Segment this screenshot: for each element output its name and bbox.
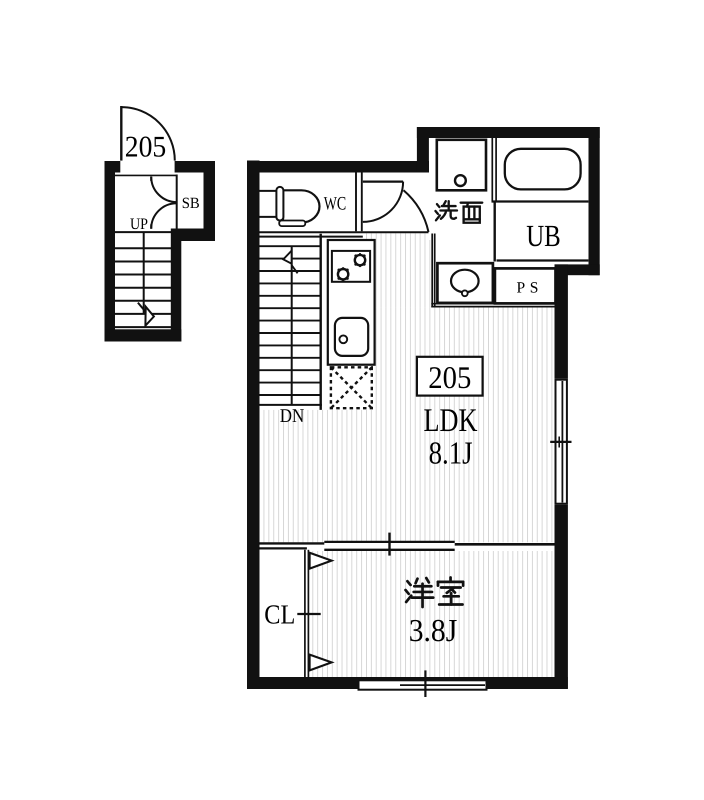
svg-text:205: 205 [428,360,471,395]
svg-text:CL: CL [264,598,295,629]
svg-text:PS: PS [517,280,543,297]
svg-text:UB: UB [526,219,561,253]
svg-text:WC: WC [324,193,347,214]
svg-text:UP: UP [130,216,148,233]
svg-text:SB: SB [182,195,200,212]
svg-text:8.1J: 8.1J [429,435,473,471]
svg-text:205: 205 [125,130,167,163]
svg-text:DN: DN [280,406,305,427]
svg-text:3.8J: 3.8J [409,612,458,648]
